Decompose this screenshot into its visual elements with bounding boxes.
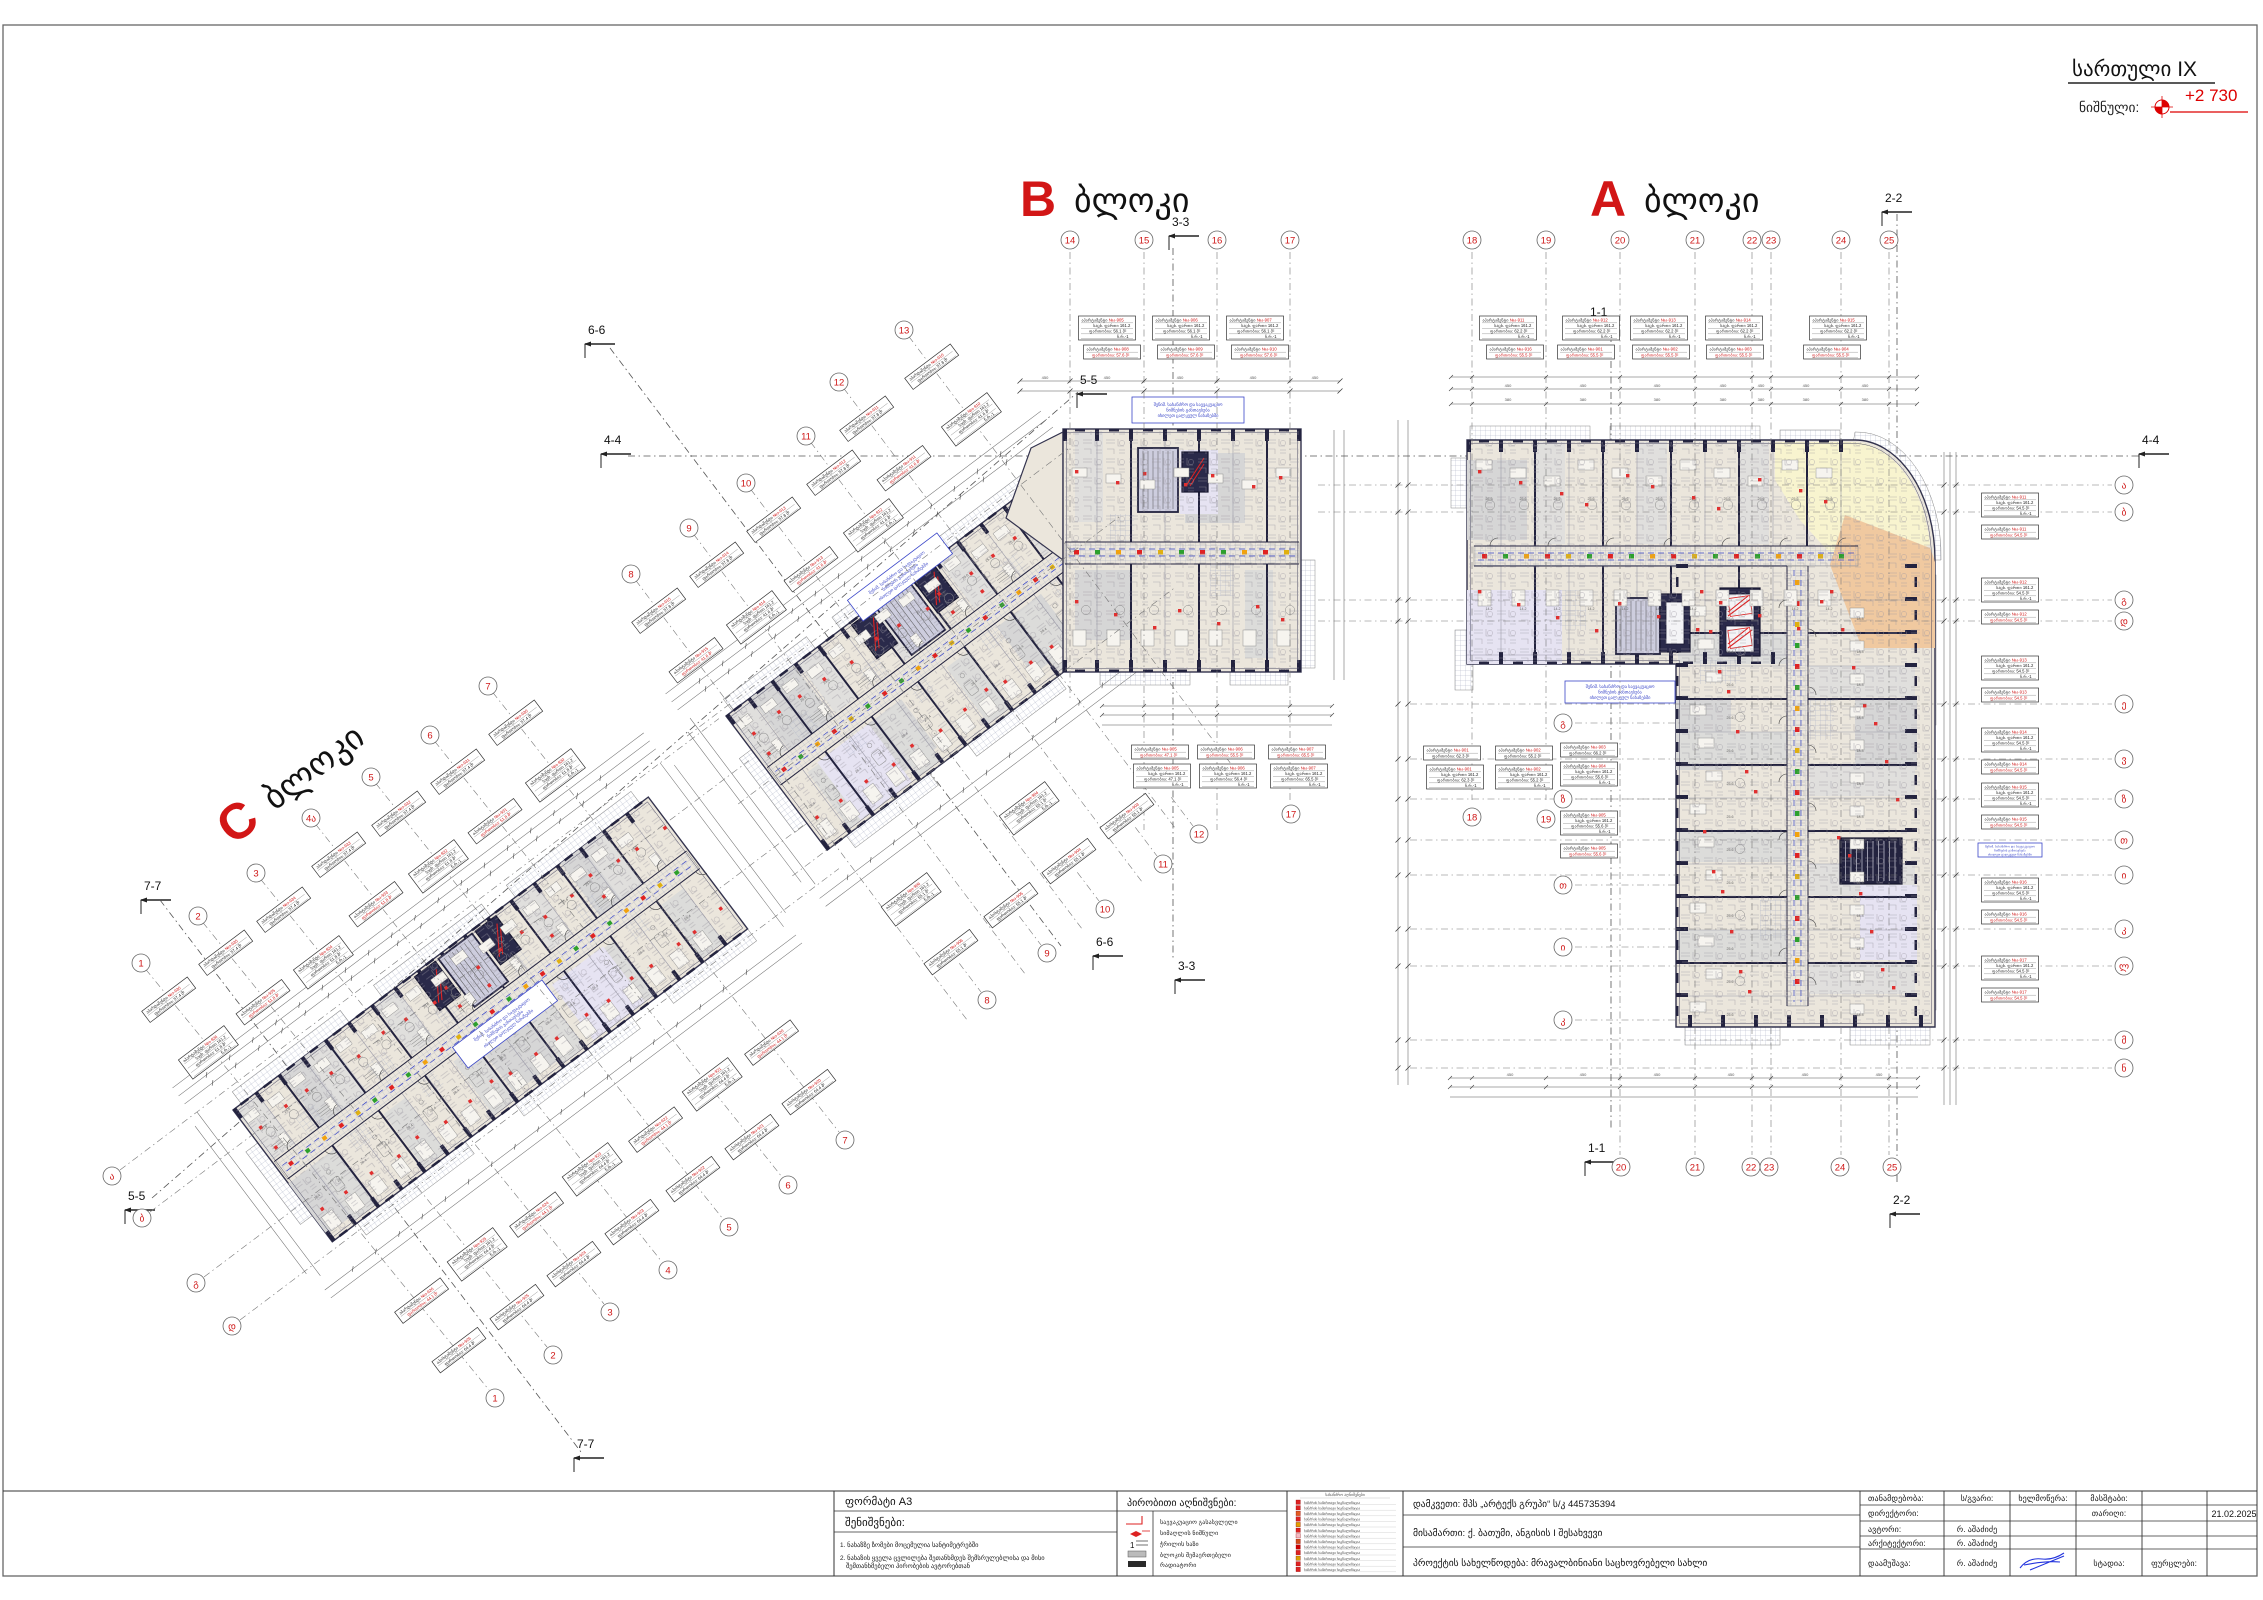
svg-text:18.3: 18.3 — [1857, 617, 1864, 621]
svg-text:22: 22 — [1747, 235, 1758, 246]
svg-text:ლ: ლ — [2119, 961, 2130, 972]
svg-text:აპარტამენტი №ა-915: აპარტამენტი №ა-915 — [1985, 785, 2028, 790]
svg-text:16: 16 — [1212, 235, 1223, 246]
svg-text:380: 380 — [1803, 397, 1810, 402]
svg-text:8: 8 — [984, 995, 989, 1006]
svg-text:საცხ. ფართი 161.2: საცხ. ფართი 161.2 — [1996, 500, 2034, 505]
svg-text:აპარტამენტი №ა-903: აპარტამენტი №ა-903 — [1710, 347, 1753, 352]
svg-text:4-4: 4-4 — [604, 433, 622, 447]
svg-text:5: 5 — [368, 772, 373, 783]
svg-text:20: 20 — [1616, 1162, 1627, 1173]
svg-text:ა: ა — [2122, 480, 2127, 491]
svg-text:აპარტამენტი №ა-903: აპარტამენტი №ა-903 — [1564, 745, 1607, 750]
svg-text:ხანძრის სამართავი სიგნალიზაცია: ხანძრის სამართავი სიგნალიზაცია — [1304, 1501, 1360, 1505]
svg-text:3: 3 — [607, 1307, 612, 1318]
svg-text:9: 9 — [686, 523, 691, 534]
svg-text:450: 450 — [1862, 383, 1869, 388]
svg-text:აპარტამენტი №ა-906: აპარტამენტი №ა-906 — [1203, 766, 1246, 771]
svg-text:საცხ. ფართი 161.2: საცხ. ფართი 161.2 — [1575, 818, 1613, 823]
svg-text:აპარტამენტი №ა-905: აპარტამენტი №ა-905 — [1564, 846, 1607, 851]
svg-text:ხანძრის სამართავი სიგნალიზაცია: ხანძრის სამართავი სიგნალიზაცია — [1304, 1557, 1360, 1561]
svg-text:23: 23 — [1766, 235, 1777, 246]
svg-text:საცხ. ფართი 161.2: საცხ. ფართი 161.2 — [1996, 585, 2034, 590]
svg-text:ფართობია: 62.3 მ²: ფართობია: 62.3 მ² — [1432, 754, 1470, 759]
svg-text:380: 380 — [1758, 397, 1765, 402]
svg-text:ფართობია: 54.5 მ²: ფართობია: 54.5 მ² — [1990, 768, 2028, 773]
svg-text:ჩ.რ.-1: ჩ.რ.-1 — [1265, 334, 1277, 339]
svg-text:ფართობია: 62.2 მ²: ფართობია: 62.2 მ² — [1716, 329, 1754, 334]
svg-text:2. ნახაზის ყველა ცვლილება შეთა: 2. ნახაზის ყველა ცვლილება შეთანხმდეს შემ… — [840, 1554, 1045, 1562]
svg-text:თ: თ — [2120, 835, 2128, 846]
svg-text:14.2: 14.2 — [1826, 607, 1833, 611]
svg-text:აპარტამენტი №ა-905: აპარტამენტი №ა-905 — [1137, 766, 1180, 771]
svg-text:14.2: 14.2 — [1724, 607, 1731, 611]
svg-text:ფართობია: 66.2 მ²: ფართობია: 66.2 მ² — [1569, 751, 1607, 756]
svg-text:ხანძრის სამართავი სიგნალიზაცია: ხანძრის სამართავი სიგნალიზაცია — [1304, 1523, 1360, 1527]
svg-text:14.2: 14.2 — [1588, 607, 1595, 611]
svg-text:18.3: 18.3 — [1857, 914, 1864, 918]
svg-text:საცხ. ფართი 161.2: საცხ. ფართი 161.2 — [1285, 771, 1323, 776]
svg-text:ჩ.რ.-1: ჩ.რ.-1 — [1599, 780, 1611, 785]
svg-text:18: 18 — [1467, 812, 1478, 823]
svg-text:საცხ. ფართი 161.2: საცხ. ფართი 161.2 — [1996, 735, 2034, 740]
svg-text:25.6: 25.6 — [1622, 497, 1629, 501]
svg-text:დ: დ — [228, 1321, 236, 1332]
svg-text:18.3: 18.3 — [1857, 749, 1864, 753]
svg-text:სართული IX: სართული IX — [2072, 58, 2197, 81]
svg-text:აპარტამენტი №ა-906: აპარტამენტი №ა-906 — [1201, 747, 1244, 752]
svg-text:აპარტამენტი №ა-907: აპარტამენტი №ა-907 — [1230, 318, 1273, 323]
svg-text:საცხ. ფართი 161.2: საცხ. ფართი 161.2 — [1720, 323, 1758, 328]
svg-text:აპარტამენტი №ა-913: აპარტამენტი №ა-913 — [1634, 318, 1677, 323]
svg-text:საცხ. ფართი 161.2: საცხ. ფართი 161.2 — [1996, 663, 2034, 668]
svg-text:იხილეთ ცალკეულ ნახაზებში: იხილეთ ცალკეულ ნახაზებში — [1158, 413, 1219, 418]
svg-text:აპარტამენტი №ა-904: აპარტამენტი №ა-904 — [1807, 347, 1850, 352]
svg-text:10: 10 — [1100, 904, 1111, 915]
svg-text:დაამუშავა:: დაამუშავა: — [1868, 1559, 1911, 1568]
svg-text:25.6: 25.6 — [1727, 749, 1734, 753]
svg-text:რ. აშაძიძე: რ. აშაძიძე — [1957, 1559, 1998, 1568]
svg-text:4-4: 4-4 — [2142, 433, 2160, 447]
svg-text:რ. აშაძიძე: რ. აშაძიძე — [1957, 1525, 1998, 1534]
svg-text:ფორმატი A3: ფორმატი A3 — [845, 1495, 912, 1508]
svg-text:ფართობია: 54.5 მ²: ფართობია: 54.5 მ² — [1990, 533, 2028, 538]
svg-text:აპარტამენტი №ა-901: აპარტამენტი №ა-901 — [1427, 748, 1470, 753]
svg-text:5-5: 5-5 — [1080, 373, 1098, 387]
svg-text:პროექტის სახელწოდება: მრავალბი: პროექტის სახელწოდება: მრავალბინიანი საცხ… — [1413, 1557, 1707, 1569]
svg-text:450: 450 — [1720, 383, 1727, 388]
svg-text:25.6: 25.6 — [1727, 782, 1734, 786]
svg-text:ბლოკის შემაერთებელი: ბლოკის შემაერთებელი — [1160, 1551, 1231, 1559]
svg-text:მისამართი: ქ. ბათუმი, ანგისის: მისამართი: ქ. ბათუმი, ანგისის I შესახვევ… — [1413, 1527, 1602, 1539]
svg-text:18: 18 — [1467, 235, 1478, 246]
svg-text:14.2: 14.2 — [1554, 607, 1561, 611]
svg-text:ჩ.რ.-1: ჩ.რ.-1 — [1117, 334, 1129, 339]
svg-text:13: 13 — [899, 325, 910, 336]
svg-text:25.6: 25.6 — [1727, 881, 1734, 885]
svg-text:აპარტამენტი №ა-905: აპარტამენტი №ა-905 — [1564, 813, 1607, 818]
svg-text:ხანძრის სამართავი სიგნალიზაცია: ხანძრის სამართავი სიგნალიზაცია — [1304, 1546, 1360, 1550]
svg-text:ი: ი — [2122, 870, 2127, 881]
svg-text:ნ: ნ — [2122, 1062, 2127, 1074]
svg-text:1: 1 — [492, 1393, 497, 1404]
svg-text:5-5: 5-5 — [128, 1189, 146, 1203]
svg-text:აპარტამენტი №ა-907: აპარტამენტი №ა-907 — [1272, 747, 1315, 752]
svg-text:საცხ. ფართი 161.2: საცხ. ფართი 161.2 — [1575, 769, 1613, 774]
svg-text:ფართობია: 55.5 მ²: ფართობია: 55.5 მ² — [1206, 753, 1244, 758]
svg-text:B: B — [1020, 171, 1056, 227]
svg-text:19: 19 — [1541, 814, 1552, 825]
svg-text:ფართობია: 54.5 მ²: ფართობია: 54.5 მ² — [1992, 669, 2030, 674]
svg-text:აპარტამენტი №ა-902: აპარტამენტი №ა-902 — [1499, 767, 1542, 772]
svg-text:18.3: 18.3 — [1857, 947, 1864, 951]
svg-text:ფართობია: 55.2 მ²: ფართობია: 55.2 მ² — [1504, 754, 1542, 759]
svg-text:25.6: 25.6 — [1727, 617, 1734, 621]
svg-text:ჩ.რ.-1: ჩ.რ.-1 — [2020, 674, 2032, 679]
svg-text:ს/გვარი:: ს/გვარი: — [1961, 1494, 1994, 1503]
svg-text:საცხ. ფართი 161.2: საცხ. ფართი 161.2 — [1093, 323, 1131, 328]
svg-text:ფართობია: 57.6 მ²: ფართობია: 57.6 მ² — [1240, 353, 1278, 358]
svg-text:21: 21 — [1690, 1162, 1701, 1173]
svg-text:450: 450 — [1580, 383, 1587, 388]
svg-text:25.6: 25.6 — [1727, 848, 1734, 852]
svg-text:380: 380 — [1654, 397, 1661, 402]
svg-text:23: 23 — [1764, 1162, 1775, 1173]
svg-text:12: 12 — [834, 377, 845, 388]
svg-text:25.6: 25.6 — [1656, 497, 1663, 501]
svg-text:14.2: 14.2 — [1622, 607, 1629, 611]
svg-text:მ: მ — [2122, 1034, 2127, 1046]
svg-text:აპარტამენტი №ა-915: აპარტამენტი №ა-915 — [1985, 817, 2028, 822]
svg-text:450: 450 — [1505, 383, 1512, 388]
svg-text:1. ნახაზზე ზომები მოცემულია სა: 1. ნახაზზე ზომები მოცემულია სანტიმეტრებშ… — [840, 1541, 978, 1549]
svg-text:17: 17 — [1285, 235, 1296, 246]
svg-text:25.6: 25.6 — [1724, 497, 1731, 501]
svg-text:ჩ.რ.-1: ჩ.რ.-1 — [1599, 829, 1611, 834]
svg-text:ჩ.რ.-1: ჩ.რ.-1 — [1172, 782, 1184, 787]
svg-text:საევაკუაციო გასასვლელი: საევაკუაციო გასასვლელი — [1160, 1519, 1238, 1526]
svg-text:აპარტამენტი №ა-914: აპარტამენტი №ა-914 — [1985, 730, 2028, 735]
svg-text:საცხ. ფართი 161.2: საცხ. ფართი 161.2 — [1996, 790, 2034, 795]
svg-text:არქიტექტორი:: არქიტექტორი: — [1868, 1539, 1926, 1548]
svg-text:25.6: 25.6 — [1727, 716, 1734, 720]
svg-text:1: 1 — [1130, 1541, 1135, 1550]
svg-text:450: 450 — [1758, 383, 1765, 388]
svg-text:ჩ.რ.-1: ჩ.რ.-1 — [1601, 334, 1613, 339]
svg-text:14.2: 14.2 — [1758, 607, 1765, 611]
svg-text:საცხ. ფართი 161.2: საცხ. ფართი 161.2 — [1996, 885, 2034, 890]
svg-text:საცხ. ფართი 161.2: საცხ. ფართი 161.2 — [1441, 772, 1479, 777]
svg-text:ფართობია: 57.6 მ²: ფართობია: 57.6 მ² — [1166, 353, 1204, 358]
svg-text:აპარტამენტი №ა-911: აპარტამენტი №ა-911 — [1483, 318, 1526, 323]
svg-text:9: 9 — [1044, 948, 1049, 959]
svg-text:ჩ.რ.-1: ჩ.რ.-1 — [1534, 783, 1546, 788]
svg-text:450: 450 — [1177, 375, 1184, 380]
svg-text:აპარტამენტი №ა-914: აპარტამენტი №ა-914 — [1985, 762, 2028, 767]
svg-text:7-7: 7-7 — [577, 1437, 595, 1451]
svg-text:ფართობია: 62.3 მ²: ფართობია: 62.3 მ² — [1437, 778, 1475, 783]
svg-text:ჩ.რ.-1: ჩ.რ.-1 — [1191, 334, 1203, 339]
svg-text:14.2: 14.2 — [1690, 607, 1697, 611]
svg-text:380: 380 — [1862, 397, 1869, 402]
svg-text:4ა: 4ა — [306, 813, 316, 824]
svg-text:ფართობია: 54.5 მ²: ფართობია: 54.5 მ² — [1990, 823, 2028, 828]
svg-text:14.2: 14.2 — [1792, 607, 1799, 611]
svg-text:ჩ.რ.-1: ჩ.რ.-1 — [1848, 334, 1860, 339]
svg-text:ფართობია: 54.5 მ²: ფართობია: 54.5 მ² — [1992, 591, 2030, 596]
svg-text:ხანძრის სამართავი სიგნალიზაცია: ხანძრის სამართავი სიგნალიზაცია — [1304, 1568, 1360, 1572]
svg-text:აპარტამენტი №ა-906: აპარტამენტი №ა-906 — [1156, 318, 1199, 323]
svg-text:საცხ. ფართი 161.2: საცხ. ფართი 161.2 — [1167, 323, 1205, 328]
svg-text:5: 5 — [726, 1222, 731, 1233]
svg-text:22: 22 — [1746, 1162, 1757, 1173]
svg-text:აპარტამენტი №ა-913: აპარტამენტი №ა-913 — [1985, 658, 2028, 663]
svg-text:აპარტამენტი №ა-917: აპარტამენტი №ა-917 — [1985, 958, 2028, 963]
svg-text:სახანძრო აღნიშვნები: სახანძრო აღნიშვნები — [1325, 1492, 1365, 1497]
svg-text:ზ: ზ — [1561, 793, 1566, 805]
svg-text:6: 6 — [785, 1180, 790, 1191]
svg-text:ჩ.რ.-1: ჩ.რ.-1 — [2020, 974, 2032, 979]
svg-text:თანამდებობა:: თანამდებობა: — [1868, 1494, 1924, 1503]
svg-text:6-6: 6-6 — [588, 323, 606, 337]
svg-text:450: 450 — [1507, 1072, 1514, 1077]
svg-text:ჩ.რ.-1: ჩ.რ.-1 — [2020, 746, 2032, 751]
svg-text:გ: გ — [1560, 718, 1566, 729]
svg-text:ჩ.რ.-1: ჩ.რ.-1 — [1465, 783, 1477, 788]
svg-text:ფართობია: 54.5 მ²: ფართობია: 54.5 მ² — [1990, 696, 2028, 701]
svg-text:ფართობია: 62.2 მ²: ფართობია: 62.2 მ² — [1573, 329, 1611, 334]
svg-text:25.6: 25.6 — [1520, 497, 1527, 501]
svg-text:ი: ი — [1561, 942, 1566, 953]
svg-text:საცხ. ფართი 161.2: საცხ. ფართი 161.2 — [1510, 772, 1548, 777]
svg-text:აპარტამენტი №ა-916: აპარტამენტი №ა-916 — [1985, 912, 2028, 917]
svg-text:380: 380 — [1720, 397, 1727, 402]
svg-text:25.6: 25.6 — [1588, 497, 1595, 501]
svg-text:ფართობია: 57.6 მ²: ფართობია: 57.6 მ² — [1092, 353, 1130, 358]
svg-text:24: 24 — [1836, 235, 1847, 246]
svg-text:სტადია:: სტადია: — [2093, 1559, 2124, 1568]
svg-text:ფართობია: 54.5 მ²: ფართობია: 54.5 მ² — [1990, 918, 2028, 923]
svg-text:ავტორი:: ავტორი: — [1868, 1525, 1901, 1534]
svg-text:საცხ. ფართი 161.2: საცხ. ფართი 161.2 — [1241, 323, 1279, 328]
svg-text:ფურცლები:: ფურცლები: — [2151, 1559, 2197, 1568]
svg-text:7: 7 — [485, 681, 490, 692]
svg-text:1-1: 1-1 — [1588, 1141, 1606, 1155]
svg-text:ნიშნული:: ნიშნული: — [2079, 100, 2139, 116]
svg-text:ფართობია: 54.5 მ²: ფართობია: 54.5 მ² — [1990, 996, 2028, 1001]
svg-text:2: 2 — [550, 1350, 555, 1361]
svg-text:აპარტამენტი №ა-902: აპარტამენტი №ა-902 — [1636, 347, 1679, 352]
svg-text:თ: თ — [1559, 880, 1567, 891]
svg-text:25.6: 25.6 — [1727, 914, 1734, 918]
svg-text:450: 450 — [1580, 1072, 1587, 1077]
svg-text:ვ: ვ — [2122, 754, 2127, 765]
svg-text:ფართობია: 56.1 მ²: ფართობია: 56.1 მ² — [1089, 329, 1127, 334]
svg-text:2-2: 2-2 — [1885, 191, 1903, 205]
svg-text:ხელმოწერა:: ხელმოწერა: — [2018, 1494, 2067, 1503]
svg-text:ხანძრის სამართავი სიგნალიზაცია: ხანძრის სამართავი სიგნალიზაცია — [1304, 1506, 1360, 1510]
svg-text:საცხ. ფართი 161.2: საცხ. ფართი 161.2 — [1645, 323, 1683, 328]
svg-text:აპარტამენტი №ა-912: აპარტამენტი №ა-912 — [1985, 580, 2028, 585]
svg-text:6: 6 — [427, 730, 432, 741]
svg-text:18.3: 18.3 — [1857, 650, 1864, 654]
svg-text:აპარტამენტი №ა-916: აპარტამენტი №ა-916 — [1985, 880, 2028, 885]
svg-text:25.6: 25.6 — [1486, 497, 1493, 501]
svg-text:14: 14 — [1065, 235, 1076, 246]
svg-text:19: 19 — [1541, 235, 1552, 246]
svg-text:ხანძრის სამართავი სიგნალიზაცია: ხანძრის სამართავი სიგნალიზაცია — [1304, 1551, 1360, 1555]
svg-text:450: 450 — [1802, 1072, 1809, 1077]
svg-text:25.6: 25.6 — [1727, 650, 1734, 654]
svg-text:მასშტაბი:: მასშტაბი: — [2090, 1494, 2127, 1503]
svg-text:რ. აშაძიძე: რ. აშაძიძე — [1957, 1539, 1998, 1548]
svg-text:450: 450 — [1728, 1072, 1735, 1077]
svg-text:4: 4 — [665, 1265, 670, 1276]
svg-text:A: A — [1590, 171, 1626, 227]
svg-text:გ: გ — [2121, 595, 2127, 606]
svg-text:25.6: 25.6 — [1727, 1013, 1734, 1017]
svg-text:შენიშ. სახანძრო და საევაკუაციო: შენიშ. სახანძრო და საევაკუაციო — [1154, 402, 1223, 407]
svg-text:ფართობია: 55.6 მ²: ფართობია: 55.6 მ² — [1569, 852, 1607, 857]
svg-text:კ: კ — [2122, 924, 2127, 935]
svg-text:25: 25 — [1887, 1162, 1898, 1173]
svg-text:12: 12 — [1194, 829, 1205, 840]
svg-text:აპარტამენტი №ა-914: აპარტამენტი №ა-914 — [1709, 318, 1752, 323]
svg-text:აპარტამენტი №ა-910: აპარტამენტი №ა-910 — [1235, 347, 1278, 352]
svg-text:ფართობია: 54.5 მ²: ფართობია: 54.5 მ² — [1992, 969, 2030, 974]
svg-text:ჩ.რ.-1: ჩ.რ.-1 — [1238, 782, 1250, 787]
svg-text:საცხ. ფართი 161.2: საცხ. ფართი 161.2 — [1824, 323, 1862, 328]
svg-text:ნიშნების განთავსება: ნიშნების განთავსება — [1166, 408, 1210, 413]
svg-text:17: 17 — [1286, 809, 1297, 820]
svg-text:ფართობია: 55.5 მ²: ფართობია: 55.5 მ² — [1566, 353, 1604, 358]
svg-text:ფართობია: 62.2 მ²: ფართობია: 62.2 მ² — [1490, 329, 1528, 334]
svg-text:11: 11 — [1158, 859, 1168, 870]
svg-text:21.02.2025: 21.02.2025 — [2211, 1509, 2256, 1519]
svg-text:ბ: ბ — [2122, 506, 2127, 518]
svg-text:საცხ. ფართი 161.2: საცხ. ფართი 161.2 — [1996, 963, 2034, 968]
svg-text:საცხ. ფართი 161.2: საცხ. ფართი 161.2 — [1577, 323, 1615, 328]
svg-text:11: 11 — [801, 431, 811, 442]
svg-text:450: 450 — [1654, 383, 1661, 388]
svg-text:14.2: 14.2 — [1520, 607, 1527, 611]
svg-text:25: 25 — [1884, 235, 1895, 246]
svg-text:ხანძრის სამართავი სიგნალიზაცია: ხანძრის სამართავი სიგნალიზაცია — [1304, 1540, 1360, 1544]
svg-text:ფართობია: 55.5 მ²: ფართობია: 55.5 მ² — [1641, 353, 1679, 358]
svg-text:ჩ.რ.-1: ჩ.რ.-1 — [1518, 334, 1530, 339]
svg-text:ფართობია: 55.5 მ²: ფართობია: 55.5 მ² — [1495, 353, 1533, 358]
svg-text:გ: გ — [193, 1278, 199, 1289]
svg-text:25.6: 25.6 — [1792, 497, 1799, 501]
svg-text:ფართობია: 47.1 მ²: ფართობია: 47.1 მ² — [1144, 777, 1182, 782]
svg-text:18.3: 18.3 — [1857, 782, 1864, 786]
svg-text:18.3: 18.3 — [1857, 683, 1864, 687]
svg-text:შენიშვნები:: შენიშვნები: — [845, 1516, 905, 1529]
svg-text:აპარტამენტი №ა-901: აპარტამენტი №ა-901 — [1561, 347, 1604, 352]
svg-text:18.3: 18.3 — [1857, 881, 1864, 885]
svg-text:ზ: ზ — [2122, 793, 2127, 805]
svg-text:14.2: 14.2 — [1486, 607, 1493, 611]
svg-text:აპარტამენტი №ა-917: აპარტამენტი №ა-917 — [1985, 990, 2028, 995]
svg-text:ფართობია: 55.5 მ²: ფართობია: 55.5 მ² — [1812, 353, 1850, 358]
svg-text:აპარტამენტი №ა-905: აპარტამენტი №ა-905 — [1082, 318, 1125, 323]
svg-text:ხანძრის სამართავი სიგნალიზაცია: ხანძრის სამართავი სიგნალიზაცია — [1304, 1534, 1360, 1538]
svg-text:3-3: 3-3 — [1172, 215, 1190, 229]
svg-text:შემთანხმებელი პირობების ავტორე: შემთანხმებელი პირობების ავტორებთან — [846, 1562, 970, 1570]
svg-text:380: 380 — [1505, 397, 1512, 402]
svg-text:25.6: 25.6 — [1727, 683, 1734, 687]
svg-text:ჩ.რ.-1: ჩ.რ.-1 — [2020, 801, 2032, 806]
svg-text:18.3: 18.3 — [1857, 848, 1864, 852]
svg-text:აპარტამენტი №ა-912: აპარტამენტი №ა-912 — [1985, 612, 2028, 617]
svg-text:ფართობია: 55.5 მ²: ფართობია: 55.5 მ² — [1715, 353, 1753, 358]
svg-text:აპარტამენტი №ა-905: აპარტამენტი №ა-905 — [1135, 747, 1178, 752]
svg-text:ა: ა — [110, 1171, 115, 1182]
svg-text:7-7: 7-7 — [144, 879, 162, 893]
svg-text:18.3: 18.3 — [1857, 1013, 1864, 1017]
svg-text:ხანძრის სამართავი სიგნალიზაცია: ხანძრის სამართავი სიგნალიზაცია — [1304, 1529, 1360, 1533]
svg-text:ფართობია: 54.5 მ²: ფართობია: 54.5 მ² — [1992, 891, 2030, 896]
svg-text:25.6: 25.6 — [1727, 980, 1734, 984]
svg-text:აპარტამენტი №ა-915: აპარტამენტი №ა-915 — [1813, 318, 1856, 323]
svg-text:ფართობია: 62.2 მ²: ფართობია: 62.2 მ² — [1820, 329, 1858, 334]
svg-text:ე: ე — [2122, 699, 2127, 710]
svg-text:450: 450 — [1042, 375, 1049, 380]
svg-text:აპარტამენტი №ა-907: აპარტამენტი №ა-907 — [1274, 766, 1317, 771]
svg-text:450: 450 — [1312, 375, 1319, 380]
svg-text:სიმაღლის ნიშნული: სიმაღლის ნიშნული — [1160, 1529, 1218, 1537]
svg-text:10: 10 — [741, 478, 752, 489]
svg-text:ჩ.რ.-1: ჩ.რ.-1 — [1309, 782, 1321, 787]
svg-text:ფართობია: 56.1 მ²: ფართობია: 56.1 მ² — [1237, 329, 1275, 334]
svg-text:24: 24 — [1835, 1162, 1846, 1173]
svg-text:აპარტამენტი №ა-902: აპარტამენტი №ა-902 — [1499, 748, 1542, 753]
svg-text:2: 2 — [195, 911, 200, 922]
svg-text:აპარტამენტი №ა-913: აპარტამენტი №ა-913 — [1985, 690, 2028, 695]
svg-text:18.3: 18.3 — [1857, 815, 1864, 819]
svg-text:1: 1 — [138, 958, 143, 969]
svg-text:2-2: 2-2 — [1893, 1193, 1911, 1207]
svg-text:ფართობია: 47.1 მ²: ფართობია: 47.1 მ² — [1140, 753, 1178, 758]
svg-text:ჩ.რ.-1: ჩ.რ.-1 — [2020, 896, 2032, 901]
svg-text:25.6: 25.6 — [1727, 947, 1734, 951]
svg-text:ჩ.რ.-1: ჩ.რ.-1 — [1744, 334, 1756, 339]
svg-text:ხანძრის სამართავი სიგნალიზაცია: ხანძრის სამართავი სიგნალიზაცია — [1304, 1518, 1360, 1522]
svg-text:აპარტამენტი №ა-912: აპარტამენტი №ა-912 — [1566, 318, 1609, 323]
svg-text:25.6: 25.6 — [1554, 497, 1561, 501]
svg-text:8: 8 — [628, 569, 633, 580]
svg-text:ჩ.რ.-1: ჩ.რ.-1 — [2020, 511, 2032, 516]
svg-text:25.6: 25.6 — [1758, 497, 1765, 501]
svg-text:დირექტორი:: დირექტორი: — [1868, 1509, 1919, 1518]
svg-text:380: 380 — [1580, 397, 1587, 402]
svg-text:საცხ. ფართი 161.2: საცხ. ფართი 161.2 — [1494, 323, 1532, 328]
svg-text:ფართობია: 65.5 მ²: ფართობია: 65.5 მ² — [1277, 753, 1315, 758]
svg-text:450: 450 — [1250, 375, 1257, 380]
svg-text:18.3: 18.3 — [1857, 980, 1864, 984]
svg-text:აპარტამენტი №ა-901: აპარტამენტი №ა-901 — [1430, 767, 1473, 772]
svg-text:ბლოკი: ბლოკი — [1644, 182, 1759, 221]
svg-text:14.2: 14.2 — [1656, 607, 1663, 611]
svg-text:პირობითი აღნიშვნები:: პირობითი აღნიშვნები: — [1127, 1497, 1236, 1509]
svg-text:კ: კ — [1561, 1015, 1566, 1026]
svg-text:ფართობია: 54.5 მ²: ფართობია: 54.5 მ² — [1992, 741, 2030, 746]
svg-text:3-3: 3-3 — [1178, 959, 1196, 973]
svg-text:450: 450 — [1654, 1072, 1661, 1077]
svg-text:ფართობია: 54.5 მ²: ფართობია: 54.5 მ² — [1992, 506, 2030, 511]
svg-text:21: 21 — [1690, 235, 1701, 246]
svg-text:ფართობია: 65.5 მ²: ფართობია: 65.5 მ² — [1281, 777, 1319, 782]
